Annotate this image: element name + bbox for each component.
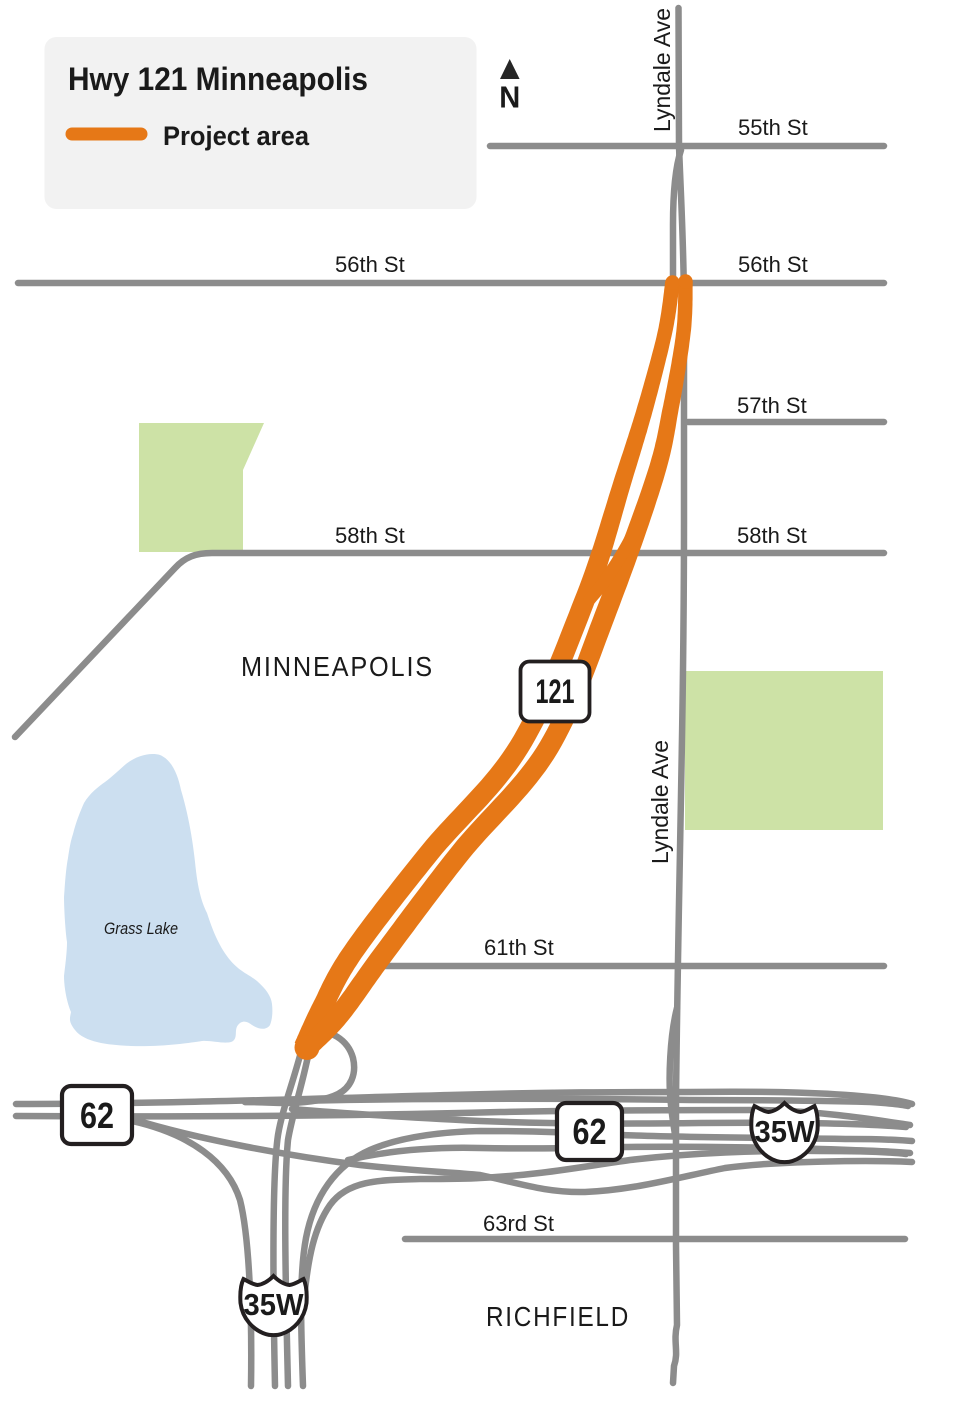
svg-text:35W: 35W: [755, 1114, 816, 1149]
svg-text:Lyndale Ave: Lyndale Ave: [649, 8, 675, 132]
svg-text:Grass Lake: Grass Lake: [104, 919, 178, 938]
svg-text:Hwy 121 Minneapolis: Hwy 121 Minneapolis: [68, 61, 368, 97]
svg-text:57th St: 57th St: [737, 393, 807, 418]
svg-text:35W: 35W: [244, 1287, 305, 1322]
svg-text:RICHFIELD: RICHFIELD: [486, 1301, 630, 1332]
svg-text:61th St: 61th St: [484, 935, 554, 960]
svg-text:62: 62: [573, 1111, 607, 1152]
svg-text:55th St: 55th St: [738, 115, 808, 140]
svg-text:121: 121: [536, 673, 575, 711]
svg-text:62: 62: [80, 1095, 114, 1136]
svg-text:N: N: [499, 80, 520, 115]
svg-text:63rd St: 63rd St: [483, 1211, 554, 1236]
svg-text:Lyndale Ave: Lyndale Ave: [647, 740, 673, 864]
svg-text:56th St: 56th St: [335, 252, 405, 277]
svg-text:Project area: Project area: [163, 121, 310, 151]
svg-text:58th St: 58th St: [737, 523, 807, 548]
svg-text:MINNEAPOLIS: MINNEAPOLIS: [241, 651, 434, 682]
svg-text:58th St: 58th St: [335, 523, 405, 548]
svg-text:56th St: 56th St: [738, 252, 808, 277]
